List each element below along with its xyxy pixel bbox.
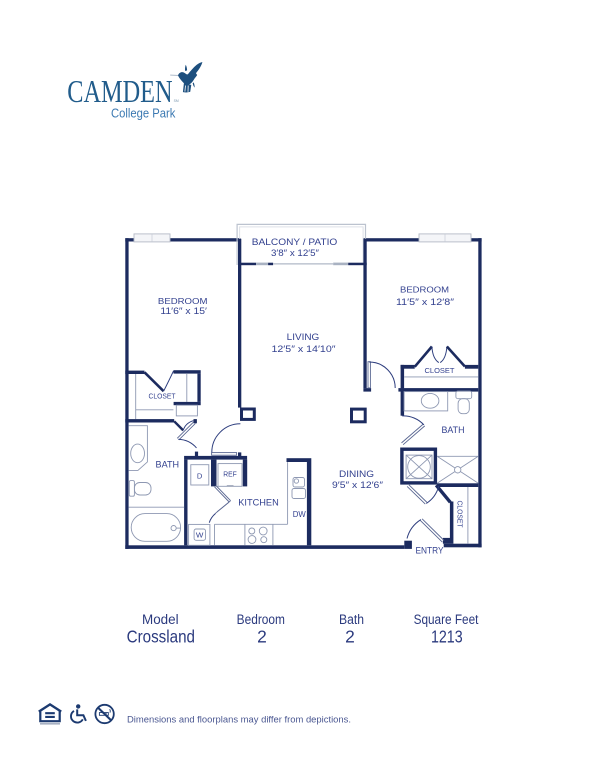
svg-text:REF: REF	[223, 470, 237, 479]
svg-text:Model: Model	[142, 612, 179, 627]
svg-text:BEDROOM: BEDROOM	[400, 286, 449, 295]
svg-text:ENTRY: ENTRY	[416, 546, 445, 557]
svg-text:Bedroom: Bedroom	[237, 612, 285, 627]
svg-text:2: 2	[345, 626, 355, 646]
svg-text:CLOSET: CLOSET	[456, 501, 465, 529]
svg-text:9′5″ x 12′6″: 9′5″ x 12′6″	[332, 480, 383, 490]
svg-text:3′8″ x 12′5″: 3′8″ x 12′5″	[271, 248, 320, 258]
svg-text:11′5″ x 12′8″: 11′5″ x 12′8″	[396, 297, 455, 307]
svg-text:Dimensions and floorplans may: Dimensions and floorplans may differ fro…	[127, 715, 351, 725]
svg-text:BATH: BATH	[156, 459, 180, 469]
svg-text:2: 2	[257, 626, 267, 646]
svg-text:11′6″ x 15′: 11′6″ x 15′	[160, 306, 207, 316]
svg-text:College Park: College Park	[111, 105, 176, 120]
svg-text:KITCHEN: KITCHEN	[238, 497, 279, 507]
svg-text:SM: SM	[174, 99, 179, 103]
svg-text:12′5″ x 14′10″: 12′5″ x 14′10″	[272, 344, 337, 354]
svg-text:D: D	[197, 471, 203, 480]
svg-text:1213: 1213	[431, 626, 463, 646]
svg-text:BATH: BATH	[442, 425, 465, 435]
svg-text:DINING: DINING	[339, 469, 374, 479]
svg-text:CAMDEN: CAMDEN	[67, 73, 172, 109]
svg-text:BEDROOM: BEDROOM	[158, 297, 208, 306]
svg-text:BALCONY / PATIO: BALCONY / PATIO	[252, 236, 338, 247]
svg-text:Crossland: Crossland	[127, 626, 195, 646]
svg-text:W: W	[196, 531, 204, 540]
svg-text:DW: DW	[293, 510, 306, 519]
svg-text:Bath: Bath	[339, 612, 364, 627]
svg-text:CLOSET: CLOSET	[149, 392, 176, 401]
svg-text:LIVING: LIVING	[287, 332, 320, 342]
svg-text:CLOSET: CLOSET	[425, 366, 455, 375]
svg-text:Square Feet: Square Feet	[414, 612, 479, 627]
